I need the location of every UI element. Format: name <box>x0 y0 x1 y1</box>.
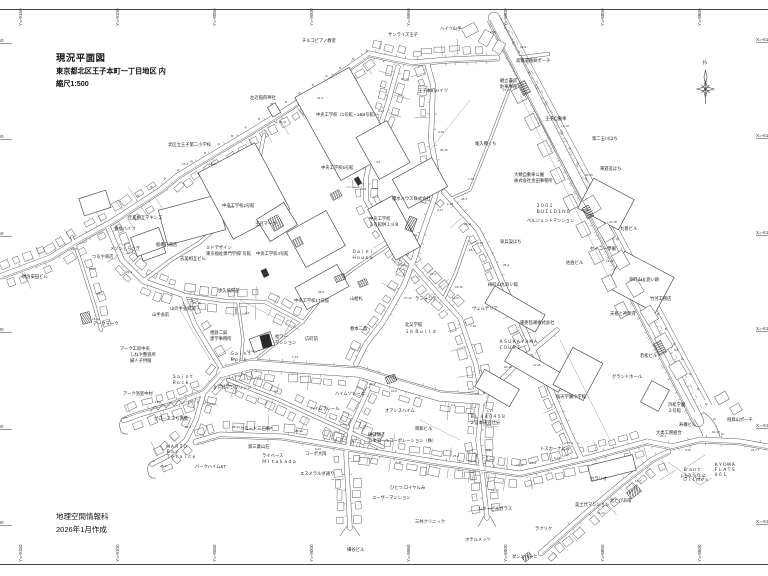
svg-text:23-7: 23-7 <box>751 448 757 452</box>
svg-text:２００１: ２００１ <box>536 203 553 208</box>
svg-text:ＣＯＵＲＴ: ＣＯＵＲＴ <box>499 345 520 350</box>
svg-text:ムネービルガラス: ムネービルガラス <box>478 505 512 512</box>
svg-text:ＢＵＩＬＤＩＮＧ: ＢＵＩＬＤＩＮＧ <box>536 209 570 214</box>
svg-text:1-6: 1-6 <box>231 357 236 361</box>
svg-text:ミドデザイン: ミドデザイン <box>206 244 232 251</box>
svg-text:19-14: 19-14 <box>207 402 215 406</box>
svg-text:6-16: 6-16 <box>315 447 321 451</box>
svg-text:第三葉山荘: 第三葉山荘 <box>248 443 270 450</box>
svg-text:Y=-9050: Y=-9050 <box>212 8 217 26</box>
svg-text:細谷ビル: 細谷ビル <box>347 546 365 553</box>
svg-text:14-10: 14-10 <box>209 162 217 166</box>
svg-text:11-17: 11-17 <box>452 296 460 300</box>
svg-text:東京福祉専門学校: 東京福祉専門学校 <box>206 250 241 257</box>
svg-text:明治安田ビル: 明治安田ビル <box>22 273 48 280</box>
svg-text:22-1: 22-1 <box>567 441 573 445</box>
svg-text:3-16: 3-16 <box>438 130 444 134</box>
svg-text:1-18: 1-18 <box>447 202 453 206</box>
svg-text:ユーザーマンション: ユーザーマンション <box>372 495 411 501</box>
svg-text:つるや商店: つるや商店 <box>92 253 114 260</box>
svg-text:中央工学校5号館: 中央工学校5号館 <box>321 164 353 171</box>
svg-text:29-4: 29-4 <box>369 382 375 386</box>
svg-text:ひとつ ロイヤルみ: ひとつ ロイヤルみ <box>390 485 426 491</box>
svg-text:24-11: 24-11 <box>279 120 287 124</box>
svg-text:相鉄二扇: 相鉄二扇 <box>210 329 227 336</box>
svg-text:グロース三ち斎数: グロース三ち斎数 <box>154 415 189 422</box>
svg-text:21-2: 21-2 <box>219 383 225 387</box>
svg-text:広町前: 広町前 <box>305 335 319 342</box>
svg-text:Y=-8850: Y=-8850 <box>600 544 605 562</box>
svg-text:８６１: ８６１ <box>714 472 727 477</box>
svg-text:ラクリク: ラクリク <box>535 526 552 532</box>
svg-text:22-18: 22-18 <box>609 220 617 224</box>
svg-text:王子自動車: 王子自動車 <box>545 115 567 122</box>
svg-text:23-6: 23-6 <box>228 205 234 209</box>
svg-text:東遊差ほち: 東遊差ほち <box>600 165 621 172</box>
svg-text:株式会社金田事務所: 株式会社金田事務所 <box>514 177 553 184</box>
svg-text:婦人子供服: 婦人子供服 <box>130 357 152 364</box>
svg-text:アークマーク: アークマーク <box>93 321 119 327</box>
svg-text:中央工学校4号館: 中央工学校4号館 <box>256 250 288 257</box>
svg-text:3-17: 3-17 <box>437 208 443 212</box>
svg-text:8-14: 8-14 <box>554 456 560 460</box>
svg-text:29-15: 29-15 <box>440 148 448 152</box>
svg-text:15-4: 15-4 <box>430 272 436 276</box>
svg-text:25-4: 25-4 <box>185 425 191 429</box>
svg-text:東亜陸運株式会社: 東亜陸運株式会社 <box>520 319 555 326</box>
svg-text:13-12: 13-12 <box>606 259 614 263</box>
svg-text:泉兵設ほち: 泉兵設ほち <box>500 238 521 245</box>
svg-text:11-16: 11-16 <box>533 363 541 367</box>
svg-text:N: N <box>702 60 708 67</box>
svg-text:Y=-8850: Y=-8850 <box>600 8 605 26</box>
svg-text:13-12: 13-12 <box>92 317 100 321</box>
svg-text:10-5: 10-5 <box>391 389 397 393</box>
svg-text:27-17: 27-17 <box>401 77 409 81</box>
svg-text:9-3: 9-3 <box>486 448 491 452</box>
svg-text:X=-6100: X=-6100 <box>756 423 768 428</box>
svg-text:２号館: ２号館 <box>668 407 681 414</box>
svg-text:大類自動車公園: 大類自動車公園 <box>514 171 544 178</box>
svg-text:Y=-8900: Y=-8900 <box>503 544 508 562</box>
svg-text:美土代マンション: 美土代マンション <box>575 501 609 508</box>
svg-text:27-17: 27-17 <box>503 88 511 92</box>
svg-text:24-9: 24-9 <box>71 247 77 251</box>
svg-text:20-17: 20-17 <box>160 464 168 468</box>
svg-text:13-10: 13-10 <box>597 511 605 515</box>
svg-text:尾久橋くち: 尾久橋くち <box>475 140 496 147</box>
svg-text:Y=-9050: Y=-9050 <box>212 544 217 562</box>
svg-text:志美相互ビル: 志美相互ビル <box>180 255 206 262</box>
svg-text:アーク浴室中村: アーク浴室中村 <box>123 390 154 397</box>
svg-text:左近稲荷神社: 左近稲荷神社 <box>250 94 276 101</box>
svg-text:29-1: 29-1 <box>660 434 666 438</box>
svg-text:X=-6150: X=-6150 <box>756 133 768 138</box>
svg-text:山手会前: 山手会前 <box>152 311 170 318</box>
svg-text:26-3: 26-3 <box>461 197 467 201</box>
svg-text:Y=-8800: Y=-8800 <box>697 8 702 26</box>
svg-text:1-11: 1-11 <box>396 460 402 464</box>
svg-text:ハイムプレール: ハイムプレール <box>310 406 340 412</box>
svg-text:28-8: 28-8 <box>89 267 95 271</box>
svg-text:28-14: 28-14 <box>232 425 240 429</box>
svg-text:北区立王子第二小学校: 北区立王子第二小学校 <box>168 141 212 148</box>
svg-text:グランドホール: グランドホール <box>612 373 643 380</box>
svg-text:15-6: 15-6 <box>530 461 536 465</box>
svg-text:飛鳥山ポーチ: 飛鳥山ポーチ <box>727 416 753 423</box>
svg-text:ハイツ山手: ハイツ山手 <box>440 25 462 32</box>
svg-text:コーポ大岡: コーポ大岡 <box>305 450 326 457</box>
svg-text:ヴェルデリア: ヴェルデリア <box>472 305 498 312</box>
svg-text:中央工学校（1号館・1&B号館）: 中央工学校（1号館・1&B号館） <box>316 111 378 118</box>
svg-text:Ｒｏｃｋ: Ｒｏｃｋ <box>172 379 189 385</box>
svg-text:縮尺1:500: 縮尺1:500 <box>56 79 89 88</box>
svg-text:24-4: 24-4 <box>317 96 323 100</box>
svg-text:北とぴあ南: 北とぴあ南 <box>610 497 632 504</box>
svg-text:29-11: 29-11 <box>581 208 589 212</box>
svg-text:梅町山九あい館: 梅町山九あい館 <box>488 281 518 288</box>
svg-text:7-19: 7-19 <box>468 177 474 181</box>
svg-text:Y=-9150: Y=-9150 <box>18 544 23 562</box>
svg-text:サンライズ王子: サンライズ王子 <box>388 31 419 38</box>
svg-text:Ｏｉｌｍｅｓ: Ｏｉｌｍｅｓ <box>683 476 709 482</box>
svg-text:7-10: 7-10 <box>470 324 476 328</box>
svg-text:7-14: 7-14 <box>292 355 298 359</box>
svg-text:10-15: 10-15 <box>265 426 273 430</box>
svg-text:29-4: 29-4 <box>126 270 132 274</box>
svg-text:Y=-9000: Y=-9000 <box>309 544 314 562</box>
svg-text:2-13: 2-13 <box>266 341 272 345</box>
svg-text:21-15: 21-15 <box>193 301 201 305</box>
svg-text:2-4: 2-4 <box>451 403 456 407</box>
svg-text:建学事務所: 建学事務所 <box>210 335 232 342</box>
svg-text:25-1: 25-1 <box>97 292 103 296</box>
svg-text:X=-6150: X=-6150 <box>756 326 768 331</box>
svg-text:23-6: 23-6 <box>520 45 526 49</box>
svg-text:板橋乃商店: 板橋乃商店 <box>156 241 178 248</box>
svg-text:エスメラルダ通り: エスメラルダ通り <box>300 470 334 477</box>
svg-text:Ｄａｉｎｉ: Ｄａｉｎｉ <box>352 248 373 254</box>
svg-text:20-19: 20-19 <box>504 365 512 369</box>
svg-text:2026年1月作成: 2026年1月作成 <box>56 524 107 534</box>
svg-text:中央工学校2号館: 中央工学校2号館 <box>222 202 254 209</box>
svg-text:Y=-9100: Y=-9100 <box>115 544 120 562</box>
svg-text:山の手会館前: 山の手会館前 <box>170 305 196 312</box>
svg-text:地理空間情報科: 地理空間情報科 <box>56 511 109 521</box>
svg-text:3-4: 3-4 <box>376 160 381 164</box>
svg-text:21-5: 21-5 <box>360 187 366 191</box>
svg-text:ハイムソレーユ: ハイムソレーユ <box>335 391 365 396</box>
svg-text:２宮本研究仕分: ２宮本研究仕分 <box>470 419 501 426</box>
svg-text:Y=-9100: Y=-9100 <box>115 8 120 26</box>
svg-text:若松ビル: 若松ビル <box>640 352 658 359</box>
svg-text:Ｓａｉｎｔ: Ｓａｉｎｔ <box>172 373 193 379</box>
svg-text:2-3: 2-3 <box>245 311 250 315</box>
svg-text:王子本町ハイツ: 王子本町ハイツ <box>418 87 448 94</box>
svg-text:マンション: マンション <box>275 340 296 346</box>
svg-text:歩久病院前: 歩久病院前 <box>218 287 240 294</box>
svg-text:Y=-8800: Y=-8800 <box>697 544 702 562</box>
svg-text:アーク工房中央: アーク工房中央 <box>120 345 151 352</box>
svg-text:ベルジェントマンション: ベルジェントマンション <box>527 218 574 224</box>
svg-text:山絵札: 山絵札 <box>350 295 364 302</box>
svg-text:天祖と神明膏: 天祖と神明膏 <box>610 310 636 317</box>
svg-text:ＢＬ ８８０４５８: ＢＬ ８８０４５８ <box>470 414 506 419</box>
svg-text:セイコー學園: セイコー學園 <box>590 245 616 252</box>
svg-text:1-17: 1-17 <box>487 409 493 413</box>
svg-text:X=-6150: X=-6150 <box>756 519 768 524</box>
svg-text:トスカーナビル: トスカーナビル <box>540 445 571 452</box>
svg-text:18-3: 18-3 <box>469 248 475 252</box>
svg-text:第二玉川ほち: 第二玉川ほち <box>592 135 618 142</box>
svg-text:6-12: 6-12 <box>477 241 483 245</box>
svg-text:27-10: 27-10 <box>404 296 412 300</box>
svg-text:28-4: 28-4 <box>639 278 645 282</box>
svg-text:佐伯ビル: 佐伯ビル <box>566 259 584 266</box>
svg-text:丸善ビル: 丸善ビル <box>620 225 638 232</box>
svg-text:Ｍｉｔａｋａｄａ: Ｍｉｔａｋａｄａ <box>262 458 296 464</box>
svg-text:チルコピアノ教室: チルコピアノ教室 <box>302 37 337 44</box>
svg-text:Y=-8950: Y=-8950 <box>406 8 411 26</box>
svg-text:28-12: 28-12 <box>295 429 303 433</box>
svg-text:バークハイム&T: バークハイム&T <box>195 464 226 470</box>
svg-text:14-3: 14-3 <box>182 162 188 166</box>
svg-text:9-8: 9-8 <box>674 348 679 352</box>
svg-text:10-15: 10-15 <box>370 432 378 436</box>
svg-text:浜松学園: 浜松学園 <box>668 401 685 408</box>
svg-text:ダンシバーヒ: ダンシバーヒ <box>512 553 538 560</box>
svg-text:中央工学校1T号館: 中央工学校1T号館 <box>294 297 329 304</box>
svg-text:Y=-8950: Y=-8950 <box>406 544 411 562</box>
svg-text:3-1: 3-1 <box>274 389 279 393</box>
svg-text:11-14: 11-14 <box>516 463 524 467</box>
svg-text:12-12: 12-12 <box>247 349 255 353</box>
svg-text:佳美相互マキシズ: 佳美相互マキシズ <box>128 214 163 221</box>
svg-text:東京都北区王子本町一丁目地区 内: 東京都北区王子本町一丁目地区 内 <box>55 67 166 76</box>
svg-text:高速道路跡ポーチ: 高速道路跡ポーチ <box>516 57 550 64</box>
svg-text:Y=-9000: Y=-9000 <box>309 8 314 26</box>
svg-text:興和ビル: 興和ビル <box>415 425 433 432</box>
svg-text:三共クリニック: 三共クリニック <box>415 518 445 525</box>
svg-text:春本二晶: 春本二晶 <box>350 325 367 332</box>
svg-text:X=-6100: X=-6100 <box>0 134 4 139</box>
svg-text:29-3: 29-3 <box>318 290 324 294</box>
svg-text:７号館: ７号館 <box>238 250 251 257</box>
svg-text:25-4: 25-4 <box>503 263 509 267</box>
svg-text:X=-6150: X=-6150 <box>0 231 4 236</box>
svg-text:6-15: 6-15 <box>685 448 691 452</box>
svg-text:12-13: 12-13 <box>561 124 569 128</box>
svg-text:メゾンしらさぎ: メゾンしらさぎ <box>110 245 141 252</box>
svg-text:ＡＳＵＫＡＹＡＭＡ: ＡＳＵＫＡＹＡＭＡ <box>499 339 538 344</box>
svg-text:松ワー: 松ワー <box>275 333 288 340</box>
svg-text:20-15: 20-15 <box>585 173 593 177</box>
svg-text:しねや整容所: しねや整容所 <box>130 351 156 358</box>
svg-text:寿構ビル: 寿構ビル <box>679 421 697 428</box>
svg-text:25-8: 25-8 <box>453 454 459 458</box>
svg-text:21-11: 21-11 <box>464 222 472 226</box>
svg-text:竹河工務店: 竹河工務店 <box>650 295 672 302</box>
svg-text:15-16: 15-16 <box>455 285 463 289</box>
svg-text:Y=-9150: Y=-9150 <box>18 8 23 26</box>
svg-text:18-4: 18-4 <box>635 479 641 483</box>
svg-text:2-19: 2-19 <box>490 30 496 34</box>
svg-text:現況平面図: 現況平面図 <box>56 52 106 63</box>
svg-text:Ｈｏｕｓｅ: Ｈｏｕｓｅ <box>352 255 373 260</box>
svg-text:X=-6150: X=-6150 <box>0 38 4 43</box>
svg-text:積水ハウス株式会社: 積水ハウス株式会社 <box>392 195 431 202</box>
svg-text:中央工学校: 中央工学校 <box>369 215 391 222</box>
svg-text:X=-6150: X=-6150 <box>0 424 4 429</box>
svg-text:X=-6100: X=-6100 <box>0 327 4 332</box>
svg-text:X=-6100: X=-6100 <box>756 37 768 42</box>
svg-text:観立書房: 観立書房 <box>500 77 517 84</box>
svg-text:10-13: 10-13 <box>712 430 720 434</box>
svg-text:X=-6100: X=-6100 <box>756 230 768 235</box>
svg-text:北又学館: 北又学館 <box>405 321 422 328</box>
svg-text:１８ Ｂｕｉｌｄ: １８ Ｂｕｉｌｄ <box>405 328 436 334</box>
svg-text:19-14: 19-14 <box>491 488 499 492</box>
svg-text:ホテルメッツ: ホテルメッツ <box>465 537 491 543</box>
svg-text:X=-6100: X=-6100 <box>0 520 4 525</box>
svg-text:4-12: 4-12 <box>378 109 384 113</box>
svg-text:桜天学園小学館: 桜天学園小学館 <box>556 393 586 400</box>
svg-text:３号館併１８Ｂ: ３号館併１８Ｂ <box>369 221 399 228</box>
svg-text:ムネアールコーポレーション（株）: ムネアールコーポレーション（株） <box>368 437 436 444</box>
svg-text:13-8: 13-8 <box>155 400 161 404</box>
svg-text:オアシスハイム: オアシスハイム <box>385 408 415 414</box>
svg-text:養福ハイツ: 養福ハイツ <box>114 225 135 232</box>
svg-text:Ｔｅｒａｉｃｅ: Ｔｅｒａｉｃｅ <box>166 453 196 459</box>
